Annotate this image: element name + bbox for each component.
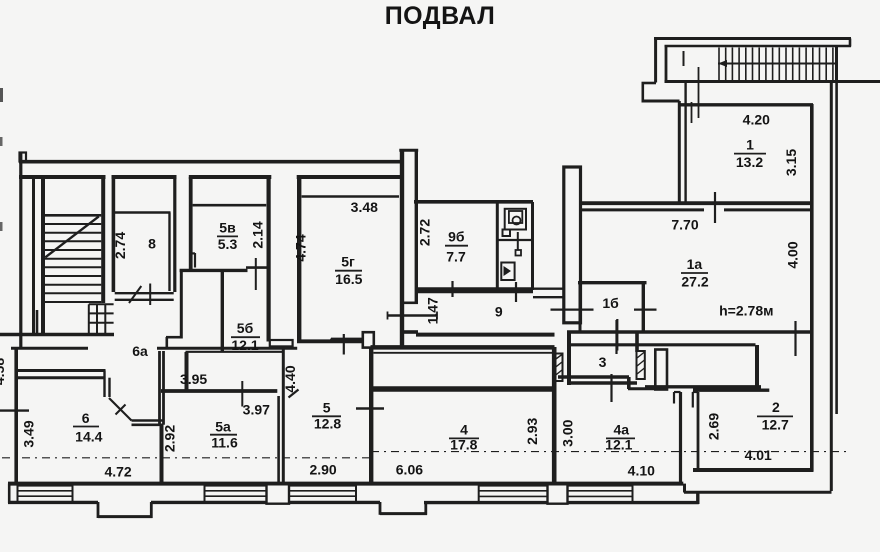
svg-text:4.10: 4.10	[628, 462, 655, 478]
svg-text:4.01: 4.01	[745, 447, 772, 463]
svg-text:ПОДВАЛ: ПОДВАЛ	[385, 2, 496, 30]
svg-text:4а: 4а	[614, 422, 630, 438]
svg-text:5а: 5а	[215, 419, 231, 435]
svg-text:7.7: 7.7	[446, 249, 466, 265]
svg-text:9: 9	[495, 304, 503, 320]
svg-text:4.74: 4.74	[293, 234, 309, 261]
svg-text:2.74: 2.74	[112, 232, 128, 259]
svg-text:6.06: 6.06	[396, 462, 423, 478]
svg-text:2.14: 2.14	[249, 221, 265, 248]
svg-text:1.47: 1.47	[425, 297, 441, 324]
svg-text:2.72: 2.72	[417, 219, 433, 246]
svg-text:5б: 5б	[237, 320, 254, 336]
svg-text:5.3: 5.3	[218, 236, 238, 252]
svg-text:7.70: 7.70	[671, 217, 698, 233]
svg-text:6а: 6а	[132, 343, 148, 359]
svg-text:2: 2	[772, 399, 780, 415]
svg-text:8: 8	[148, 236, 156, 252]
svg-text:16.5: 16.5	[335, 271, 362, 287]
svg-text:1: 1	[746, 137, 754, 153]
svg-text:3: 3	[599, 354, 607, 370]
svg-text:4.40: 4.40	[282, 365, 298, 392]
svg-text:4: 4	[460, 422, 468, 438]
svg-text:4.58: 4.58	[0, 358, 7, 385]
svg-text:5: 5	[323, 400, 331, 416]
svg-text:9б: 9б	[448, 229, 465, 245]
svg-text:12.8: 12.8	[314, 415, 341, 431]
svg-text:2.93: 2.93	[524, 417, 540, 444]
svg-text:12.1: 12.1	[605, 436, 632, 452]
svg-text:2.90: 2.90	[309, 462, 336, 478]
svg-text:6: 6	[82, 410, 90, 426]
svg-text:1а: 1а	[687, 256, 703, 272]
svg-text:14.4: 14.4	[75, 429, 102, 445]
svg-text:3.48: 3.48	[351, 199, 378, 215]
svg-text:h=2.78м: h=2.78м	[719, 303, 773, 319]
svg-text:3.00: 3.00	[560, 419, 576, 446]
svg-text:5в: 5в	[219, 220, 236, 236]
svg-text:3.15: 3.15	[783, 149, 799, 176]
svg-text:12.1: 12.1	[231, 337, 258, 353]
svg-text:11.6: 11.6	[211, 435, 238, 451]
svg-text:4.72: 4.72	[104, 464, 131, 480]
svg-text:13.2: 13.2	[736, 154, 763, 170]
svg-text:3.97: 3.97	[243, 401, 270, 417]
svg-text:17.8: 17.8	[450, 437, 477, 453]
svg-text:12.7: 12.7	[762, 417, 789, 433]
svg-text:3.49: 3.49	[21, 420, 37, 447]
svg-text:2.69: 2.69	[706, 413, 722, 440]
svg-text:4.20: 4.20	[743, 111, 770, 127]
svg-text:5г: 5г	[341, 254, 355, 270]
svg-text:1б: 1б	[602, 295, 619, 311]
svg-text:3.95: 3.95	[180, 371, 207, 387]
svg-text:27.2: 27.2	[681, 274, 708, 290]
svg-text:2.92: 2.92	[161, 425, 177, 452]
svg-text:4.00: 4.00	[784, 241, 800, 268]
